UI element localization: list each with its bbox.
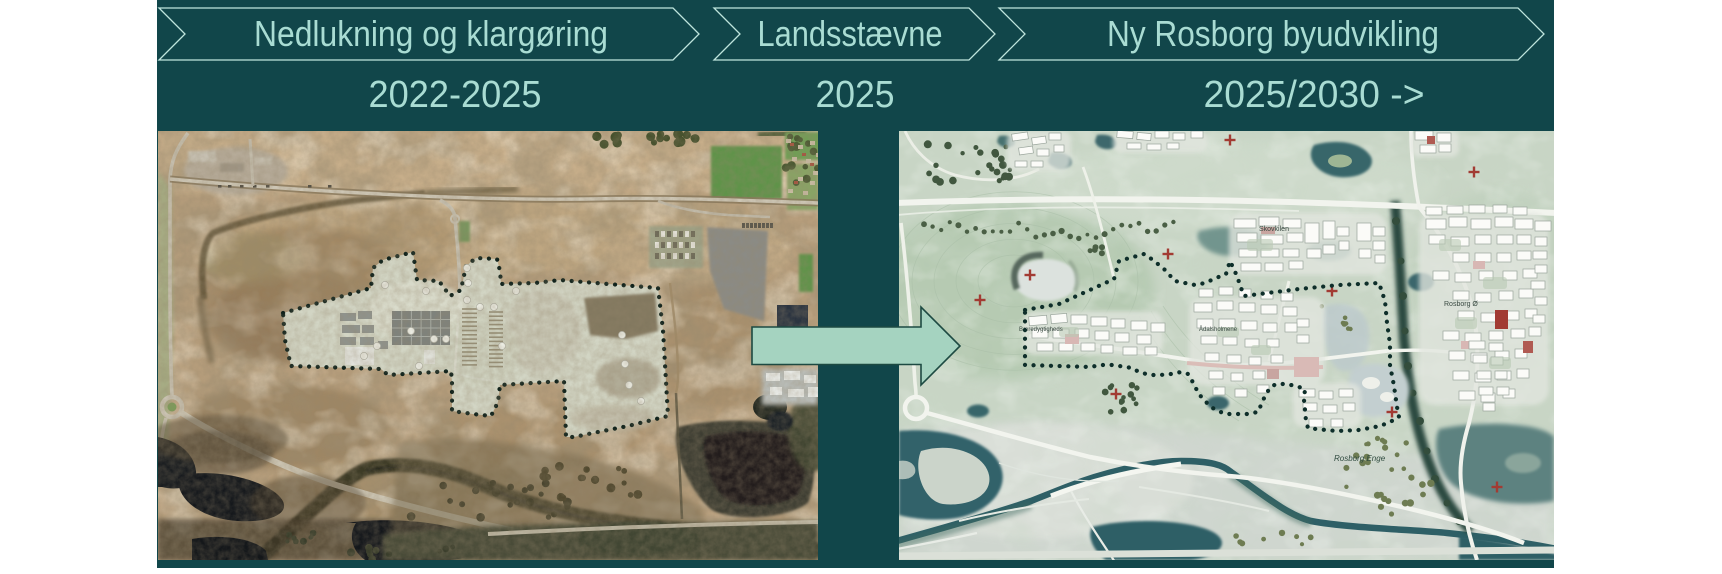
svg-text:Nedlukning og klargøring: Nedlukning og klargøring [254, 13, 608, 54]
svg-text:Landsstævne: Landsstævne [758, 13, 943, 54]
svg-text:Skovkilen: Skovkilen [1259, 226, 1289, 233]
svg-text:2022-2025: 2022-2025 [369, 74, 542, 116]
svg-text:Rosborg Enge: Rosborg Enge [1334, 454, 1386, 463]
svg-text:Ådalsholmene: Ådalsholmene [1199, 326, 1238, 333]
svg-text:Rosborg Ø: Rosborg Ø [1444, 301, 1478, 308]
svg-text:Ny Rosborg byudvikling: Ny Rosborg byudvikling [1107, 13, 1439, 54]
svg-text:2025/2030 ->: 2025/2030 -> [1204, 74, 1425, 116]
svg-text:2025: 2025 [816, 74, 895, 116]
